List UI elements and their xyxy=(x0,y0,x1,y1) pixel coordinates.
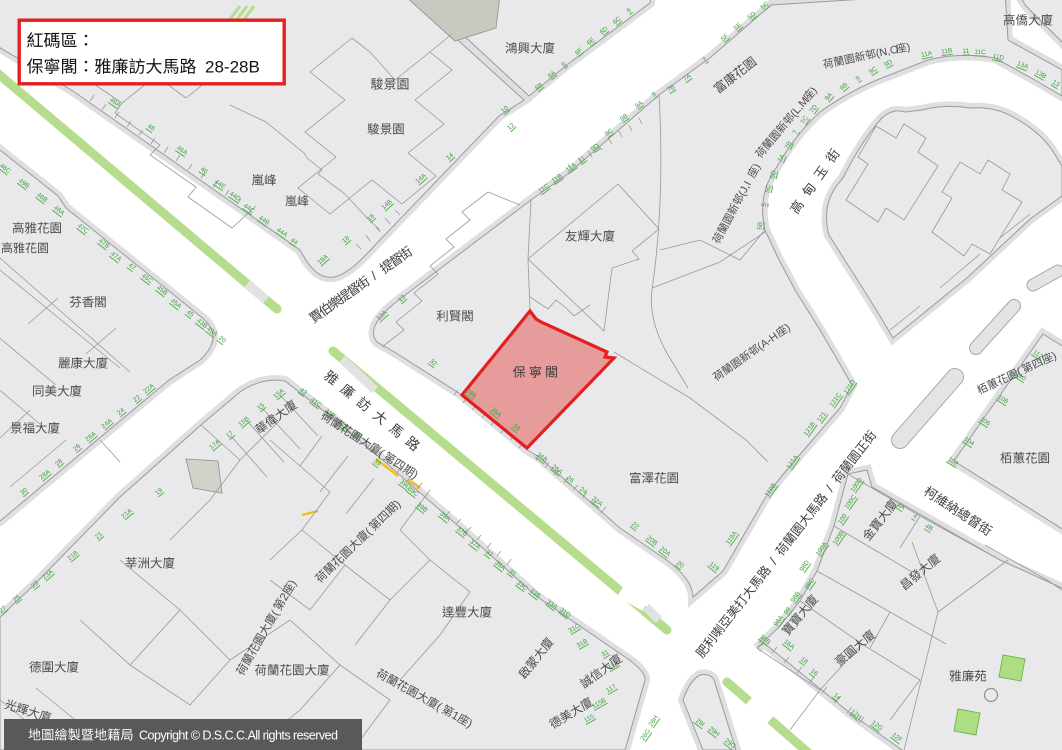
svg-text:11C: 11C xyxy=(974,49,986,57)
svg-text:Copyright © D.S.C.C.All rights: Copyright © D.S.C.C.All rights reserved xyxy=(139,729,338,743)
svg-text:11: 11 xyxy=(962,48,969,55)
svg-text:28-28B: 28-28B xyxy=(205,58,260,77)
